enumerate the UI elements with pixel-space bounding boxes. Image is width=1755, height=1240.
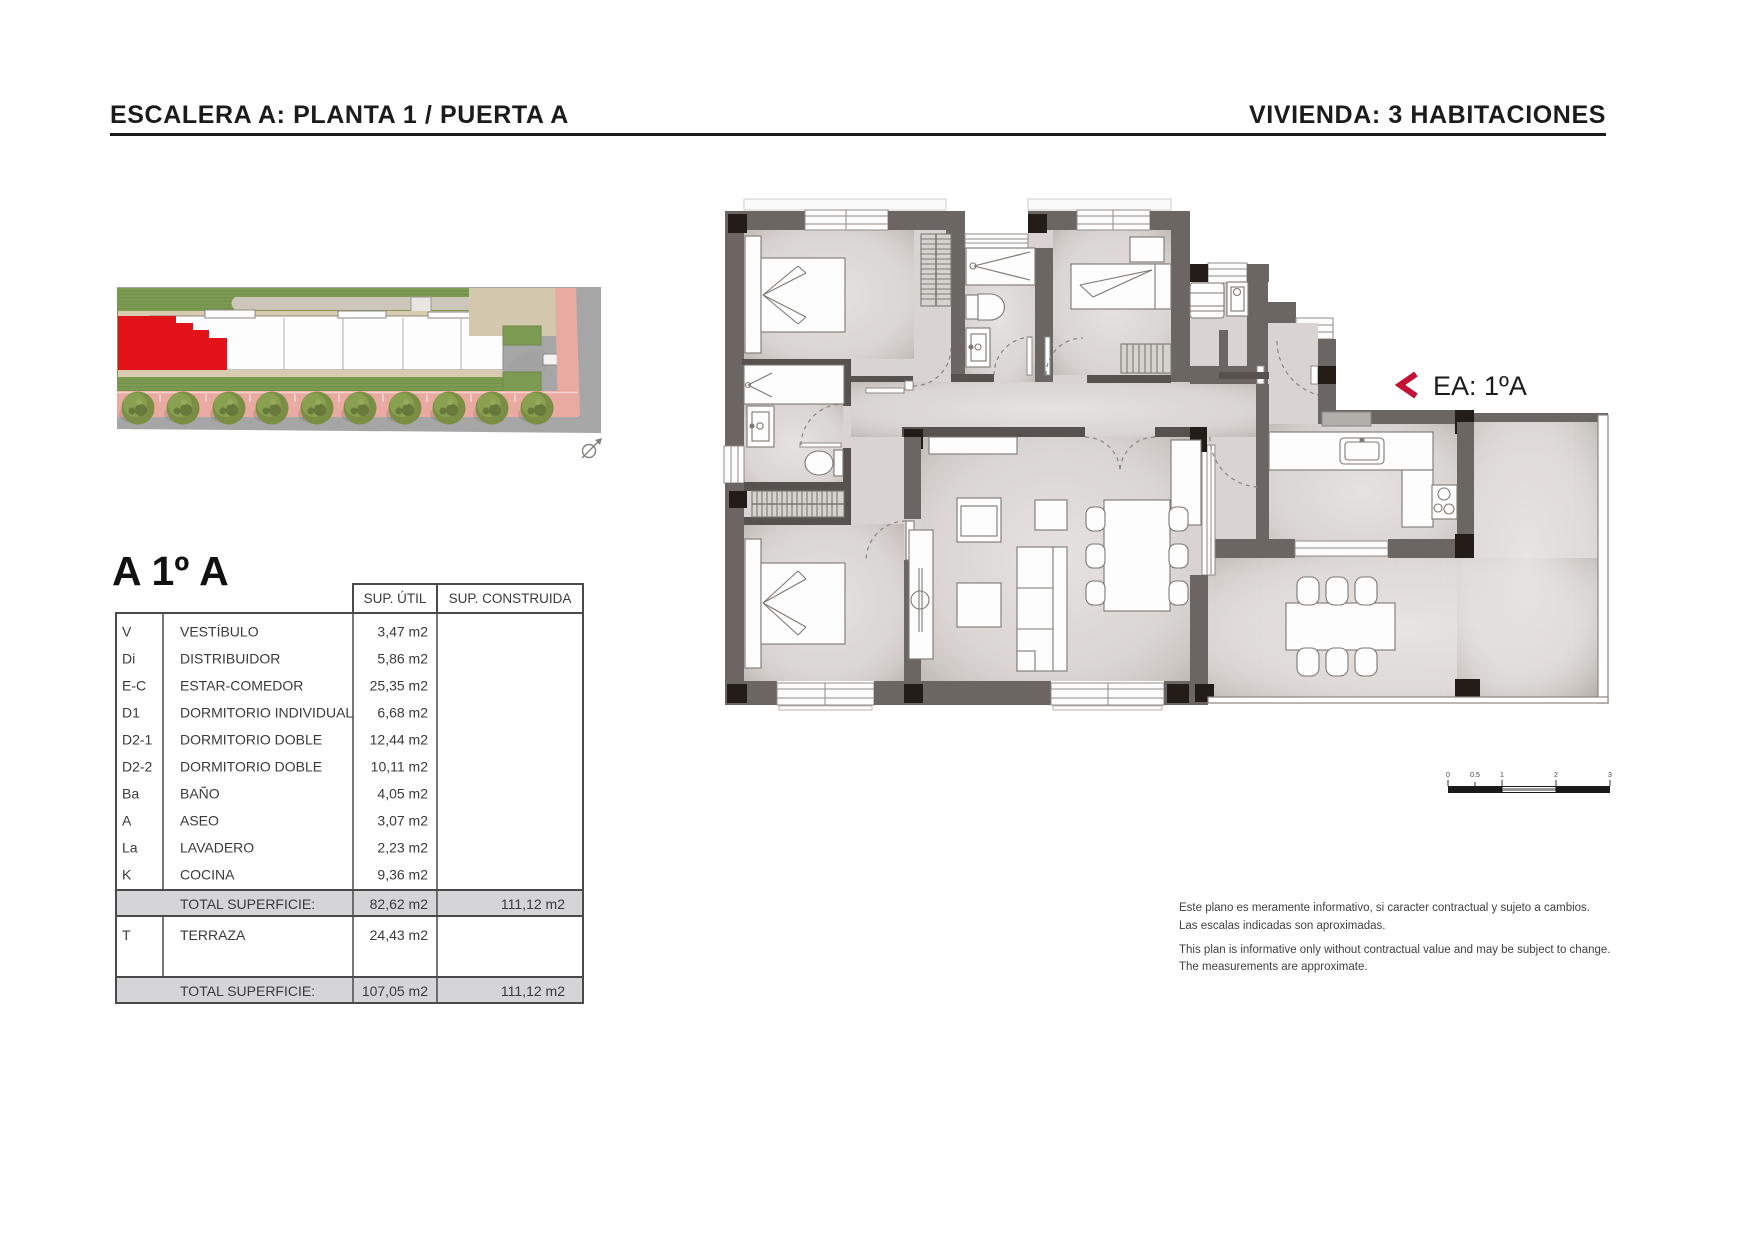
svg-text:DORMITORIO DOBLE: DORMITORIO DOBLE xyxy=(180,759,322,775)
svg-text:10,11 m2: 10,11 m2 xyxy=(371,759,429,775)
svg-text:24,43 m2: 24,43 m2 xyxy=(370,927,429,943)
svg-text:DISTRIBUIDOR: DISTRIBUIDOR xyxy=(180,651,280,667)
svg-text:SUP. CONSTRUIDA: SUP. CONSTRUIDA xyxy=(449,591,572,606)
svg-text:6,68 m2: 6,68 m2 xyxy=(377,705,428,721)
svg-text:111,12 m2: 111,12 m2 xyxy=(501,896,565,912)
svg-text:5,86 m2: 5,86 m2 xyxy=(377,651,428,667)
svg-text:3,07 m2: 3,07 m2 xyxy=(377,813,428,829)
svg-text:DORMITORIO INDIVIDUAL: DORMITORIO INDIVIDUAL xyxy=(180,705,353,721)
svg-text:D2-2: D2-2 xyxy=(122,759,153,775)
svg-text:COCINA: COCINA xyxy=(180,867,235,883)
svg-text:La: La xyxy=(122,840,138,856)
svg-text:This plan is informative only: This plan is informative only without co… xyxy=(1179,944,1611,956)
svg-text:D2-1: D2-1 xyxy=(122,732,153,748)
svg-text:9,36 m2: 9,36 m2 xyxy=(377,867,428,883)
svg-text:TERRAZA: TERRAZA xyxy=(180,927,246,943)
svg-text:D1: D1 xyxy=(122,705,140,721)
svg-text:E-C: E-C xyxy=(122,678,146,694)
svg-text:TOTAL SUPERFICIE:: TOTAL SUPERFICIE: xyxy=(180,983,315,999)
svg-text:LAVADERO: LAVADERO xyxy=(180,840,254,856)
svg-text:25,35 m2: 25,35 m2 xyxy=(370,678,429,694)
svg-text:A 1º A: A 1º A xyxy=(112,548,229,594)
svg-text:BAÑO: BAÑO xyxy=(180,786,220,802)
svg-text:Di: Di xyxy=(122,651,135,667)
svg-text:The measurements are approxima: The measurements are approximate. xyxy=(1179,961,1368,973)
svg-text:ESTAR-COMEDOR: ESTAR-COMEDOR xyxy=(180,678,303,694)
svg-text:0.5: 0.5 xyxy=(1470,772,1480,779)
svg-text:12,44 m2: 12,44 m2 xyxy=(370,732,429,748)
svg-text:ASEO: ASEO xyxy=(180,813,219,829)
svg-text:1: 1 xyxy=(1500,772,1504,779)
svg-text:82,62 m2: 82,62 m2 xyxy=(370,896,429,912)
svg-text:EA: 1ºA: EA: 1ºA xyxy=(1433,371,1527,401)
svg-text:ESCALERA A: PLANTA 1 / PUERTA: ESCALERA A: PLANTA 1 / PUERTA A xyxy=(110,101,569,129)
svg-text:0: 0 xyxy=(1446,772,1450,779)
svg-text:T: T xyxy=(122,927,131,943)
svg-text:VIVIENDA: 3 HABITACIONES: VIVIENDA: 3 HABITACIONES xyxy=(1249,101,1606,129)
svg-text:A: A xyxy=(122,813,132,829)
svg-text:111,12 m2: 111,12 m2 xyxy=(501,983,565,999)
svg-text:2: 2 xyxy=(1554,772,1558,779)
svg-text:Las escalas indicadas son apro: Las escalas indicadas son aproximadas. xyxy=(1179,920,1385,932)
svg-text:TOTAL SUPERFICIE:: TOTAL SUPERFICIE: xyxy=(180,896,315,912)
svg-text:2,23 m2: 2,23 m2 xyxy=(377,840,428,856)
svg-text:VESTÍBULO: VESTÍBULO xyxy=(180,624,259,640)
svg-text:3,47 m2: 3,47 m2 xyxy=(377,624,428,640)
svg-text:Ba: Ba xyxy=(122,786,139,802)
svg-text:Este plano es meramente inform: Este plano es meramente informativo, si … xyxy=(1179,902,1590,914)
svg-text:107,05 m2: 107,05 m2 xyxy=(362,983,428,999)
svg-text:3: 3 xyxy=(1608,772,1612,779)
svg-text:SUP. ÚTIL: SUP. ÚTIL xyxy=(364,591,427,606)
svg-text:V: V xyxy=(122,624,132,640)
svg-text:4,05 m2: 4,05 m2 xyxy=(377,786,428,802)
svg-text:K: K xyxy=(122,867,132,883)
svg-text:DORMITORIO DOBLE: DORMITORIO DOBLE xyxy=(180,732,322,748)
